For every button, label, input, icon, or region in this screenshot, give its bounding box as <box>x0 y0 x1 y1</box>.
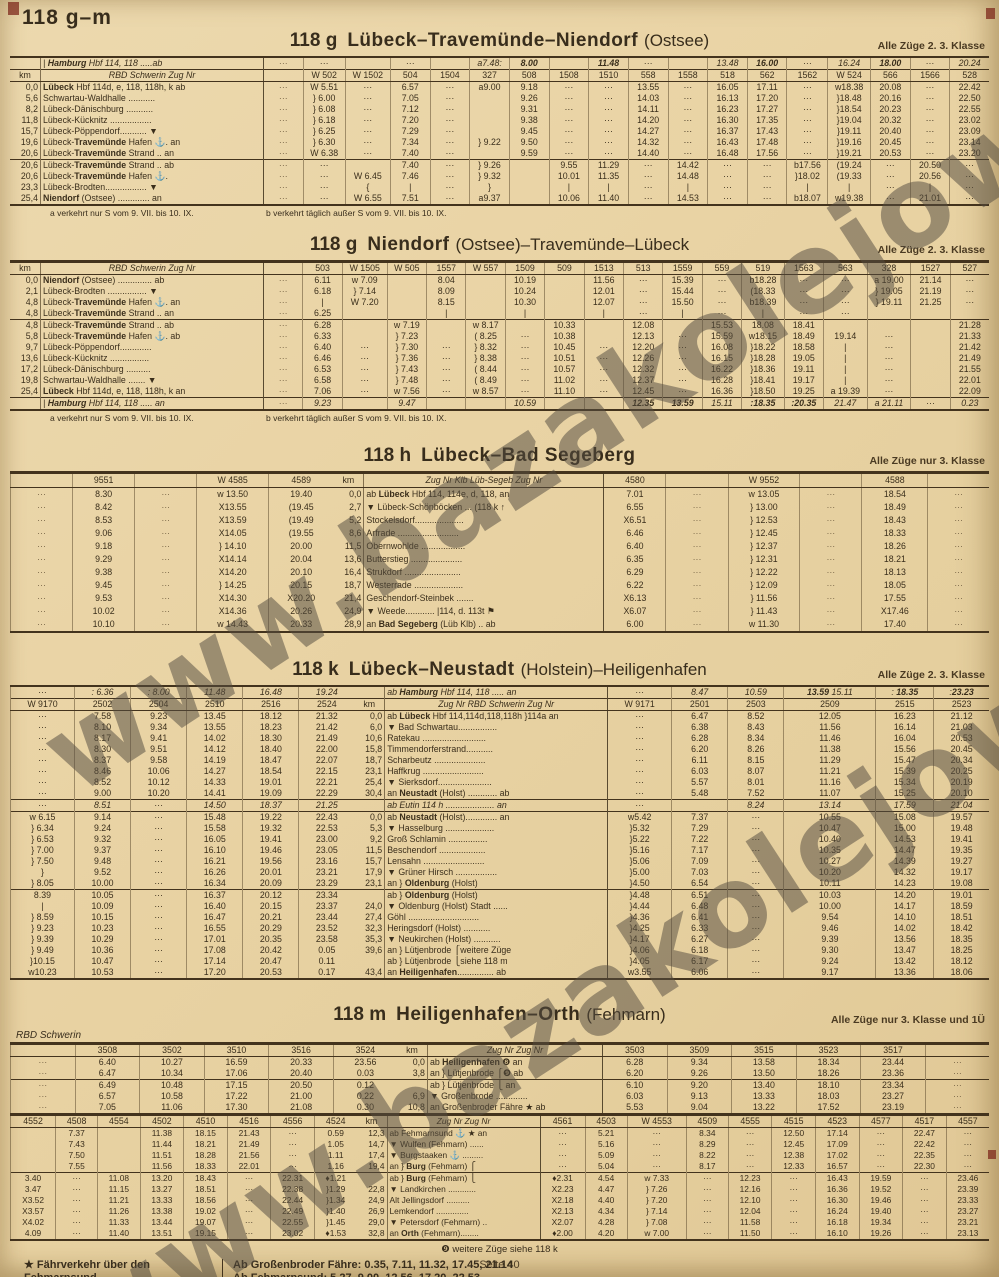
timetable-page: 118 g–m 118 gLübeck–Travemünde–Niendorf(… <box>0 0 999 1277</box>
section-title-row: 118 mHeiligenhafen–Orth(Fehmarn) Alle Zü… <box>10 1004 989 1028</box>
section-title-row: 118 hLübeck–Bad Segeberg Alle Züge nur 3… <box>10 445 989 469</box>
footnote-a: a verkehrt nur S vom 9. VII. bis 10. IX. <box>50 208 194 218</box>
page-corner-label: 118 g–m <box>22 6 112 30</box>
ferry-line-1: Ab Großenbroder Fähre: 0.35, 7.11, 11.32… <box>233 1259 513 1272</box>
section-title-suffix: (Holstein)–Heiligenhafen <box>521 660 707 679</box>
section-118g-up: 118 gNiendorf(Ostsee)–Travemünde–Lübeck … <box>0 234 999 423</box>
footnotes: a verkehrt nur S vom 9. VII. bis 10. IX.… <box>50 208 989 218</box>
section-title: Niendorf <box>367 234 449 255</box>
section-title-row: 118 gNiendorf(Ostsee)–Travemünde–Lübeck … <box>10 234 989 258</box>
section-title-suffix: (Fehmarn) <box>586 1005 665 1024</box>
timetable-grid: 45524508455445024510451645564524kmZug Nr… <box>10 1115 989 1239</box>
section-number: 118 k <box>292 659 339 680</box>
section-title: Lübeck–Travemünde–Niendorf <box>347 30 638 51</box>
registration-mark <box>986 8 995 19</box>
ferry-line-2: Ab Fehmarnsund: 5.27, 9.00, 12.56, 17.20… <box>233 1272 513 1277</box>
section-number: 118 h <box>364 445 412 466</box>
timetable-grid: 35083502351035163524kmZug Nr Zug Nr35033… <box>10 1044 989 1113</box>
timetable-118g-up: kmRBD Schwerin Zug Nr503W 1505W 5051557W… <box>10 260 989 411</box>
class-note: Alle Züge nur 3. Klasse und 1Ü <box>831 1014 985 1026</box>
section-title: Heiligenhafen–Orth <box>396 1004 580 1025</box>
timetable-grid: 9551W 45854589kmZug Nr Klb Lüb-Segeb Zug… <box>10 473 989 631</box>
ferry-info: ★ Fährverkehr über den Fehmarnsund Ab Gr… <box>24 1259 989 1277</box>
section-118h: 118 hLübeck–Bad Segeberg Alle Züge nur 3… <box>0 445 999 633</box>
footnotes: a verkehrt nur S vom 9. VII. bis 10. IX.… <box>50 413 989 423</box>
section-title: Lübeck–Bad Segeberg <box>421 445 635 466</box>
section-118m: 118 mHeiligenhafen–Orth(Fehmarn) Alle Zü… <box>0 1004 999 1277</box>
section-title-row: 118 kLübeck–Neustadt(Holstein)–Heiligenh… <box>10 659 989 683</box>
more-trains-note: ❾ weitere Züge siehe 118 k <box>10 1244 989 1255</box>
class-note: Alle Züge 2. 3. Klasse <box>878 244 985 256</box>
section-title-row: 118 gLübeck–Travemünde–Niendorf(Ostsee) … <box>10 30 989 54</box>
registration-mark <box>8 2 19 15</box>
section-title-suffix: (Ostsee)–Travemünde–Lübeck <box>455 235 689 254</box>
section-118k: 118 kLübeck–Neustadt(Holstein)–Heiligenh… <box>0 659 999 980</box>
timetable-118k: ···: 6.36: 8.0011.4816.4819.24ab Hamburg… <box>10 685 989 980</box>
timetable-118h: 9551W 45854589kmZug Nr Klb Lüb-Segeb Zug… <box>10 471 989 633</box>
footnote-b: b verkehrt täglich außer S vom 9. VII. b… <box>266 413 446 423</box>
timetable-grid: kmRBD Schwerin Zug Nr503W 1505W 5051557W… <box>10 262 989 409</box>
timetable-grid: ···: 6.36: 8.0011.4816.4819.24ab Hamburg… <box>10 687 989 978</box>
timetable-grid: | Hamburg Hbf 114, 118 .....ab·········a… <box>10 58 989 204</box>
rbd-label: RBD Schwerin <box>16 1030 989 1041</box>
timetable-118m-part1: 35083502351035163524kmZug Nr Zug Nr35033… <box>10 1042 989 1115</box>
section-number: 118 g <box>290 30 338 51</box>
timetable-118g-down: | Hamburg Hbf 114, 118 .....ab·········a… <box>10 56 989 206</box>
section-number: 118 m <box>333 1004 386 1025</box>
ferry-times: Ab Großenbroder Fähre: 0.35, 7.11, 11.32… <box>223 1259 513 1277</box>
section-title-suffix: (Ostsee) <box>644 31 709 50</box>
timetable-118m-part2: 45524508455445024510451645564524kmZug Nr… <box>10 1115 989 1241</box>
ferry-label: ★ Fährverkehr über den Fehmarnsund <box>24 1259 223 1277</box>
class-note: Alle Züge 2. 3. Klasse <box>878 669 985 681</box>
class-note: Alle Züge nur 3. Klasse <box>869 455 985 467</box>
footnote-a: a verkehrt nur S vom 9. VII. bis 10. IX. <box>50 413 194 423</box>
section-title: Lübeck–Neustadt <box>349 659 515 680</box>
class-note: Alle Züge 2. 3. Klasse <box>878 40 985 52</box>
section-number: 118 g <box>310 234 358 255</box>
section-118g-down: 118 gLübeck–Travemünde–Niendorf(Ostsee) … <box>0 30 999 218</box>
footnote-b: b verkehrt täglich außer S vom 9. VII. b… <box>266 208 446 218</box>
